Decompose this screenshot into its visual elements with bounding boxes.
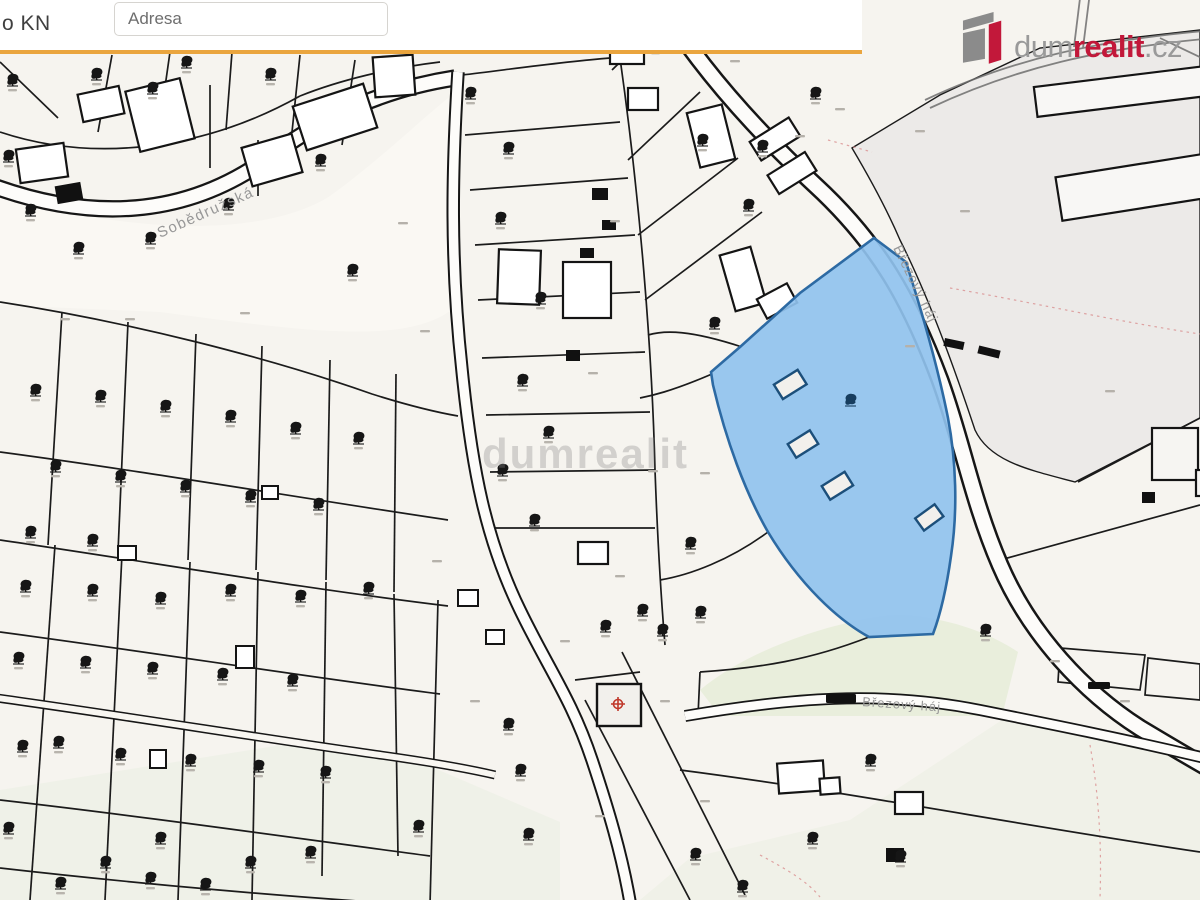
parcel-number-mark	[658, 639, 667, 641]
parcel-number-mark	[536, 307, 545, 309]
parcel-number-mark	[496, 227, 505, 229]
parcel-number-mark	[588, 372, 598, 374]
parcel-number-mark	[835, 108, 845, 110]
parcel-number-mark	[808, 847, 817, 849]
parcel-number-mark	[981, 639, 990, 641]
parcel-number-mark	[691, 863, 700, 865]
parcel-number-mark	[306, 861, 315, 863]
parcel-number-mark	[1050, 660, 1060, 662]
logo-house-icon	[962, 6, 1006, 64]
kn-label: o KN	[2, 12, 51, 36]
parcel-number-mark	[896, 865, 905, 867]
parcel-number-mark	[364, 597, 373, 599]
parcel-number-mark	[420, 330, 430, 332]
road-label-dark	[826, 694, 856, 703]
parcel-number-mark	[530, 529, 539, 531]
address-input[interactable]	[114, 2, 388, 36]
parcel-number-mark	[314, 513, 323, 515]
parcel-number-mark	[240, 312, 250, 314]
parcel-number-mark	[398, 222, 408, 224]
parcel-number-mark	[116, 485, 125, 487]
parcel-number-mark	[710, 332, 719, 334]
parcel-number-mark	[915, 130, 925, 132]
parcel-number-mark	[601, 635, 610, 637]
parcel-number-mark	[504, 733, 513, 735]
parcel-number-mark	[615, 575, 625, 577]
parcel-number-mark	[92, 83, 101, 85]
parcel-number-mark	[595, 815, 605, 817]
parcel-number-mark	[758, 155, 767, 157]
parcel-number-mark	[54, 751, 63, 753]
parcel-number-mark	[146, 887, 155, 889]
parcel-number-mark	[88, 549, 97, 551]
parcel-number-mark	[156, 607, 165, 609]
parcel-number-mark	[700, 800, 710, 802]
parcel-number-mark	[700, 472, 710, 474]
parcel-number-mark	[56, 892, 65, 894]
parcel-number-mark	[466, 102, 475, 104]
parcel-number-mark	[14, 667, 23, 669]
parcel-number-mark	[744, 214, 753, 216]
parcel-number-mark	[498, 479, 507, 481]
parcel-number-mark	[254, 775, 263, 777]
parcel-number-mark	[660, 700, 670, 702]
parcel-number-mark	[544, 441, 553, 443]
parcel-number-mark	[518, 389, 527, 391]
parcel-number-mark	[224, 213, 233, 215]
parcel-number-mark	[648, 470, 658, 472]
parcel-number-mark	[116, 763, 125, 765]
parcel-number-mark	[316, 169, 325, 171]
parcel-number-mark	[432, 560, 442, 562]
parcel-number-mark	[686, 552, 695, 554]
parcel-number-mark	[26, 219, 35, 221]
parcel-number-mark	[161, 415, 170, 417]
parcel-number-mark	[738, 895, 747, 897]
parcel-number-mark	[201, 893, 210, 895]
logo-text-dum: dum	[1014, 29, 1073, 64]
parcel-number-mark	[4, 837, 13, 839]
dumrealit-logo[interactable]: dumrealit.cz	[962, 6, 1194, 64]
parcel-number-mark	[125, 318, 135, 320]
parcel-number-mark	[8, 89, 17, 91]
parcel-number-mark	[348, 279, 357, 281]
parcel-number-mark	[60, 318, 70, 320]
chapel-building	[597, 684, 641, 726]
parcel-number-mark	[81, 671, 90, 673]
parcel-number-mark	[246, 871, 255, 873]
parcel-number-mark	[288, 689, 297, 691]
parcel-number-mark	[4, 165, 13, 167]
parcel-number-mark	[74, 257, 83, 259]
parcel-number-mark	[960, 210, 970, 212]
logo-text: dumrealit.cz	[1014, 31, 1182, 64]
logo-text-cz: .cz	[1144, 29, 1182, 64]
logo-text-realit: realit	[1073, 29, 1144, 64]
parcel-number-mark	[321, 781, 330, 783]
parcel-number-mark	[51, 475, 60, 477]
parcel-number-mark	[266, 83, 275, 85]
parcel-number-mark	[31, 399, 40, 401]
parcel-number-mark	[26, 541, 35, 543]
parcel-number-mark	[638, 619, 647, 621]
parcel-number-mark	[148, 97, 157, 99]
parcel-number-mark	[354, 447, 363, 449]
parcel-number-mark	[18, 755, 27, 757]
parcel-number-mark	[730, 60, 740, 62]
parcel-number-mark	[504, 157, 513, 159]
cadastral-map[interactable]: Sobědružská Březový háj Březový háj	[0, 0, 1200, 900]
parcel-number-mark	[470, 700, 480, 702]
topbar: o KN	[0, 0, 862, 54]
parcel-number-mark	[1120, 700, 1130, 702]
parcel-number-mark	[146, 247, 155, 249]
parcel-number-mark	[226, 599, 235, 601]
parcel-number-mark	[88, 599, 97, 601]
parcel-number-mark	[866, 769, 875, 771]
parcel-number-mark	[148, 677, 157, 679]
parcel-number-mark	[905, 345, 915, 347]
parcel-number-mark	[246, 505, 255, 507]
parcel-number-mark	[291, 437, 300, 439]
parcel-number-mark	[560, 640, 570, 642]
parcel-number-mark	[610, 220, 620, 222]
parcel-number-mark	[1105, 390, 1115, 392]
parcel-number-mark	[186, 769, 195, 771]
parcel-number-mark	[516, 779, 525, 781]
parcel-number-mark	[795, 135, 805, 137]
parcel-number-mark	[101, 871, 110, 873]
parcel-number-mark	[218, 683, 227, 685]
parcel-number-mark	[181, 495, 190, 497]
parcel-number-mark	[698, 149, 707, 151]
parcel-number-mark	[524, 843, 533, 845]
parcel-number-mark	[182, 71, 191, 73]
parcel-number-mark	[811, 102, 820, 104]
parcel-number-mark	[96, 405, 105, 407]
parcel-number-mark	[21, 595, 30, 597]
parcel-number-mark	[156, 847, 165, 849]
parcel-number-mark	[414, 835, 423, 837]
parcel-number-mark	[226, 425, 235, 427]
parcel-number-mark	[296, 605, 305, 607]
parcel-number-mark	[696, 621, 705, 623]
